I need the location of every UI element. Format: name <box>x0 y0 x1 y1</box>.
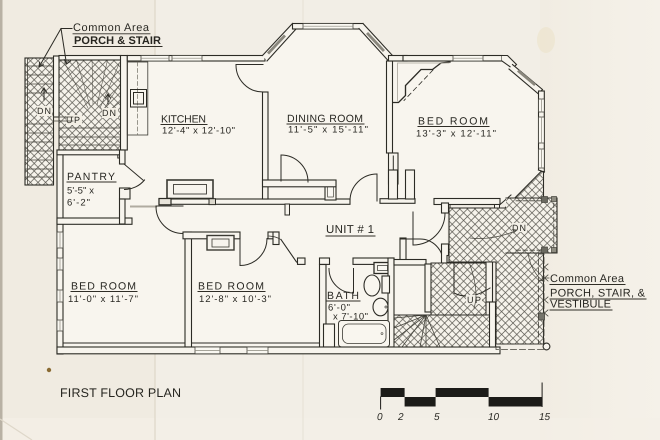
svg-text:12'-8" x 10'-3": 12'-8" x 10'-3" <box>199 294 271 305</box>
svg-text:UNIT # 1: UNIT # 1 <box>326 224 374 236</box>
svg-text:Common Area: Common Area <box>550 273 625 285</box>
svg-text:DN: DN <box>37 106 51 116</box>
svg-text:2: 2 <box>397 412 404 423</box>
svg-text:6'-2": 6'-2" <box>67 198 90 209</box>
svg-text:5'-5" x: 5'-5" x <box>67 186 94 197</box>
svg-text:KITCHEN: KITCHEN <box>161 114 206 126</box>
svg-text:x 7'-10": x 7'-10" <box>333 312 368 323</box>
svg-text:12'-4" x 12'-10": 12'-4" x 12'-10" <box>162 126 235 137</box>
svg-text:5: 5 <box>434 412 440 423</box>
svg-text:11'-0" x 11'-7": 11'-0" x 11'-7" <box>68 294 138 305</box>
svg-text:UP: UP <box>66 115 80 125</box>
svg-text:DN: DN <box>102 108 116 118</box>
svg-text:13'-3" x 12'-11": 13'-3" x 12'-11" <box>416 129 496 140</box>
svg-text:11'-5" x 15'-11": 11'-5" x 15'-11" <box>288 125 368 136</box>
svg-text:PANTRY: PANTRY <box>67 171 115 183</box>
svg-text:UP: UP <box>467 295 481 305</box>
svg-text:10: 10 <box>488 412 500 423</box>
svg-text:BATH: BATH <box>327 290 359 302</box>
svg-text:VESTIBULE: VESTIBULE <box>550 299 611 311</box>
svg-text:Common Area: Common Area <box>73 22 150 34</box>
svg-text:15: 15 <box>539 412 551 423</box>
svg-text:0: 0 <box>377 412 383 423</box>
svg-text:PORCH & STAIR: PORCH & STAIR <box>74 35 161 47</box>
svg-text:FIRST FLOOR PLAN: FIRST FLOOR PLAN <box>60 386 183 400</box>
svg-text:DINING ROOM: DINING ROOM <box>287 113 363 125</box>
